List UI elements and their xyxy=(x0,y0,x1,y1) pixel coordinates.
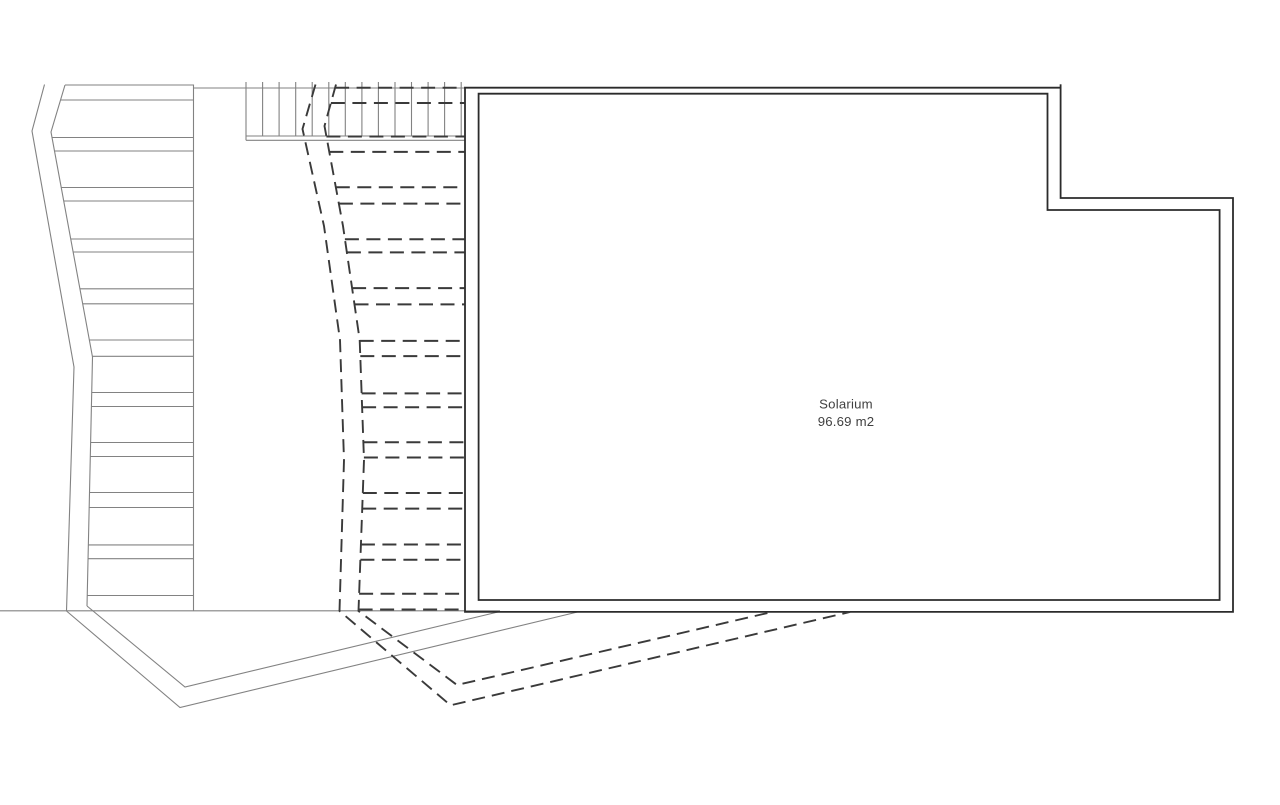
svg-text:96.69 m2: 96.69 m2 xyxy=(818,414,875,429)
svg-text:Solarium: Solarium xyxy=(819,397,873,412)
